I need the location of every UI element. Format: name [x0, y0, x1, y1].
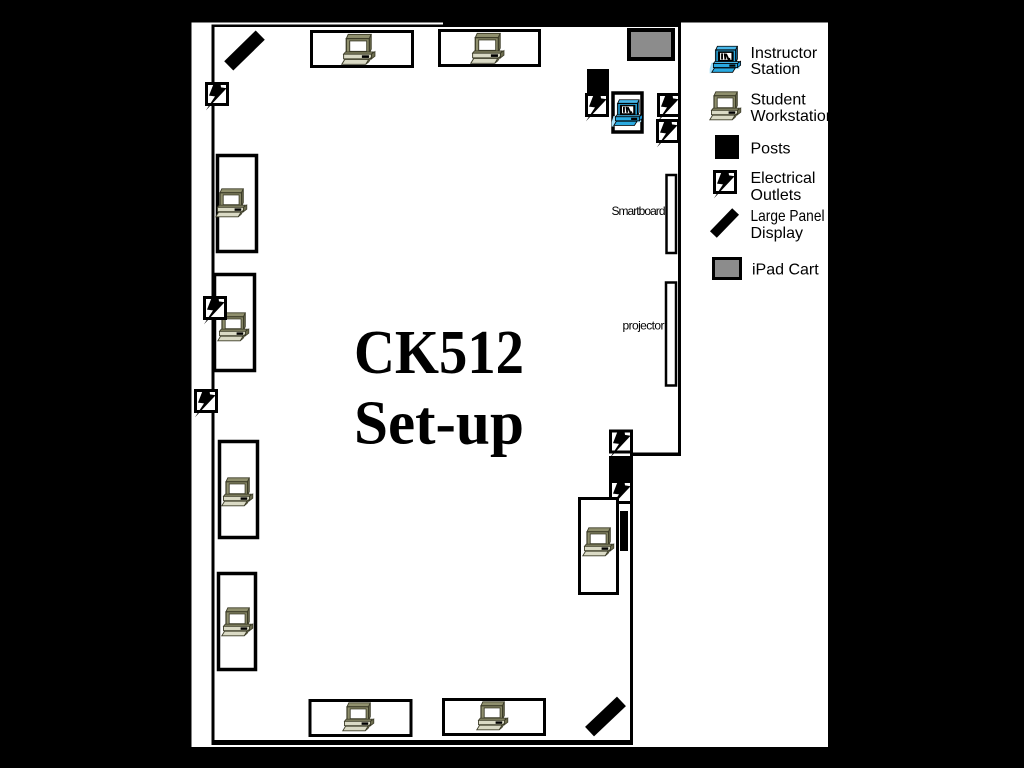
svg-text:CK512: CK512 — [354, 319, 524, 387]
svg-text:projector: projector — [623, 319, 665, 333]
svg-text:Large Panel: Large Panel — [751, 208, 825, 225]
svg-text:iPad Cart: iPad Cart — [752, 262, 819, 279]
svg-text:Station: Station — [751, 61, 801, 78]
svg-text:Outlets: Outlets — [751, 187, 802, 204]
svg-text:Electrical: Electrical — [751, 170, 816, 187]
svg-text:Workstation: Workstation — [751, 108, 835, 125]
svg-text:Smartboard: Smartboard — [612, 204, 666, 218]
svg-text:Set-up: Set-up — [354, 390, 524, 458]
svg-text:Student: Student — [751, 91, 807, 108]
svg-text:Display: Display — [751, 225, 803, 242]
svg-text:Posts: Posts — [751, 140, 791, 157]
svg-text:Instructor: Instructor — [751, 45, 818, 62]
